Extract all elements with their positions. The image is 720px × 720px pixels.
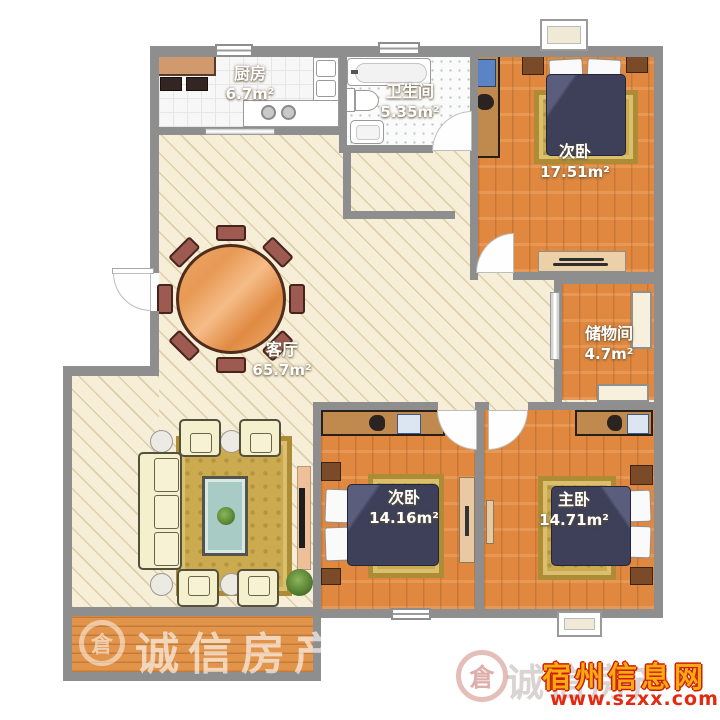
wall xyxy=(654,46,663,618)
sofa xyxy=(138,452,182,570)
wall xyxy=(528,402,663,410)
wall xyxy=(554,276,663,284)
bathroom-window xyxy=(378,42,420,55)
room-name: 次卧 xyxy=(559,142,591,161)
storage-label: 储物间 4.7m² xyxy=(568,324,650,364)
storage-shelf xyxy=(597,384,649,402)
room-area: 17.51m² xyxy=(520,163,630,183)
room-area: 14.16m² xyxy=(356,509,452,529)
sink-basin xyxy=(356,125,380,140)
nightstand xyxy=(630,465,653,485)
room-area: 6.7m² xyxy=(205,85,295,105)
room-area: 65.7m² xyxy=(240,361,324,381)
floorplan-canvas: 厨房 6.7m² 卫生间 5.35m² 次卧 17.51m² 储物间 4.7m²… xyxy=(0,0,720,720)
room-name: 客厅 xyxy=(266,340,298,359)
balcony-watermark: 诚信房产 xyxy=(135,618,347,682)
armchair-seat xyxy=(188,576,210,596)
wall xyxy=(470,46,478,280)
kitchen-window xyxy=(215,44,253,57)
bedroom-mid-dresser xyxy=(459,477,475,563)
armchair-seat xyxy=(250,433,272,453)
dining-chair xyxy=(216,225,246,241)
armchair xyxy=(237,569,279,607)
bedroom-top-label: 次卧 17.51m² xyxy=(520,142,630,182)
bedroom-mid-wardrobe xyxy=(321,410,445,436)
window-sill-radiator xyxy=(538,251,626,272)
room-area: 4.7m² xyxy=(568,345,650,365)
sofa-cushion xyxy=(154,495,179,529)
stove-burner-icon xyxy=(261,105,276,120)
agency-logo-icon: 倉 xyxy=(79,620,125,666)
wall xyxy=(313,402,438,410)
pillow xyxy=(628,526,651,559)
sofa-cushion xyxy=(154,532,179,566)
entry-door-arc xyxy=(113,273,151,311)
nightstand xyxy=(630,567,653,585)
wall xyxy=(150,46,159,273)
tv-icon xyxy=(299,488,305,548)
agency-logo-glyph: 倉 xyxy=(469,658,494,694)
wall xyxy=(343,152,351,219)
kitchen-sink xyxy=(316,80,336,97)
wardrobe-bag-icon xyxy=(477,59,496,87)
coffee-table xyxy=(202,476,248,556)
kitchen-sink xyxy=(316,60,336,77)
potted-plant-icon xyxy=(286,569,313,596)
master-dresser xyxy=(486,500,494,544)
dining-chair xyxy=(157,284,173,314)
window-pane xyxy=(547,26,581,44)
wardrobe-clothes-icon xyxy=(607,415,622,431)
kitchen-chair xyxy=(160,77,182,91)
kitchen-sliding-door xyxy=(205,128,275,135)
bathtub-faucet-icon xyxy=(351,70,358,74)
wall xyxy=(63,607,321,616)
bathtub-basin xyxy=(355,63,427,83)
armchair xyxy=(177,569,219,607)
dresser-handle xyxy=(465,506,469,536)
nightstand xyxy=(626,56,648,73)
room-name: 厨房 xyxy=(234,64,266,83)
wall xyxy=(63,366,72,680)
side-table xyxy=(150,430,173,453)
master-label: 主卧 14.71m² xyxy=(524,490,624,530)
kitchen-label: 厨房 6.7m² xyxy=(205,64,295,104)
storage-sliding-door xyxy=(550,292,560,360)
room-area: 5.35m² xyxy=(372,103,448,123)
table-plant-icon xyxy=(217,507,235,525)
wall xyxy=(339,145,433,153)
pillow xyxy=(324,489,349,524)
agency-logo-icon: 倉 xyxy=(456,650,508,702)
room-name: 主卧 xyxy=(558,490,590,509)
stove-burner-icon xyxy=(281,105,296,120)
master-bay-window xyxy=(557,611,602,637)
room-area: 14.71m² xyxy=(524,511,624,531)
room-name: 储物间 xyxy=(585,324,633,343)
site-watermark-group: 倉 诚信房产 宿州信息网 www.szxx.com.cn xyxy=(440,640,720,718)
room-name: 卫生间 xyxy=(386,82,434,101)
dining-table xyxy=(176,244,286,354)
side-table xyxy=(150,573,173,596)
bedroom-mid-window xyxy=(391,608,431,620)
wardrobe-boot-icon xyxy=(369,415,385,431)
living-label: 客厅 65.7m² xyxy=(240,340,324,380)
wall xyxy=(430,609,663,618)
wall xyxy=(313,609,393,618)
armchair xyxy=(239,419,281,457)
wall xyxy=(339,46,347,153)
agency-logo-glyph: 倉 xyxy=(91,627,113,659)
radiator-line xyxy=(553,263,608,266)
dining-chair xyxy=(289,284,305,314)
site-url-watermark: www.szxx.com.cn xyxy=(550,688,720,710)
master-wardrobe xyxy=(575,410,653,436)
sofa-cushion xyxy=(154,458,179,492)
bathroom-label: 卫生间 5.35m² xyxy=(372,82,448,122)
pillow xyxy=(324,527,349,562)
wall xyxy=(63,366,159,376)
nightstand xyxy=(321,568,341,585)
nightstand xyxy=(321,462,341,481)
wardrobe-clothes-icon xyxy=(477,94,494,110)
toilet-tank xyxy=(346,88,355,112)
radiator-line xyxy=(559,258,604,261)
bathroom-sink-icon xyxy=(350,120,384,144)
armchair xyxy=(179,419,221,457)
armchair-seat xyxy=(190,433,212,453)
bedroom-mid-label: 次卧 14.16m² xyxy=(356,488,452,528)
wall xyxy=(343,211,455,219)
nightstand xyxy=(522,56,544,75)
wardrobe-shirt-icon xyxy=(397,414,421,434)
window-pane xyxy=(564,618,595,630)
pillow xyxy=(628,490,651,523)
wardrobe-shirt-icon xyxy=(627,414,649,434)
armchair-seat xyxy=(248,576,270,596)
bedroom-top-window xyxy=(540,19,588,51)
room-name: 次卧 xyxy=(388,488,420,507)
